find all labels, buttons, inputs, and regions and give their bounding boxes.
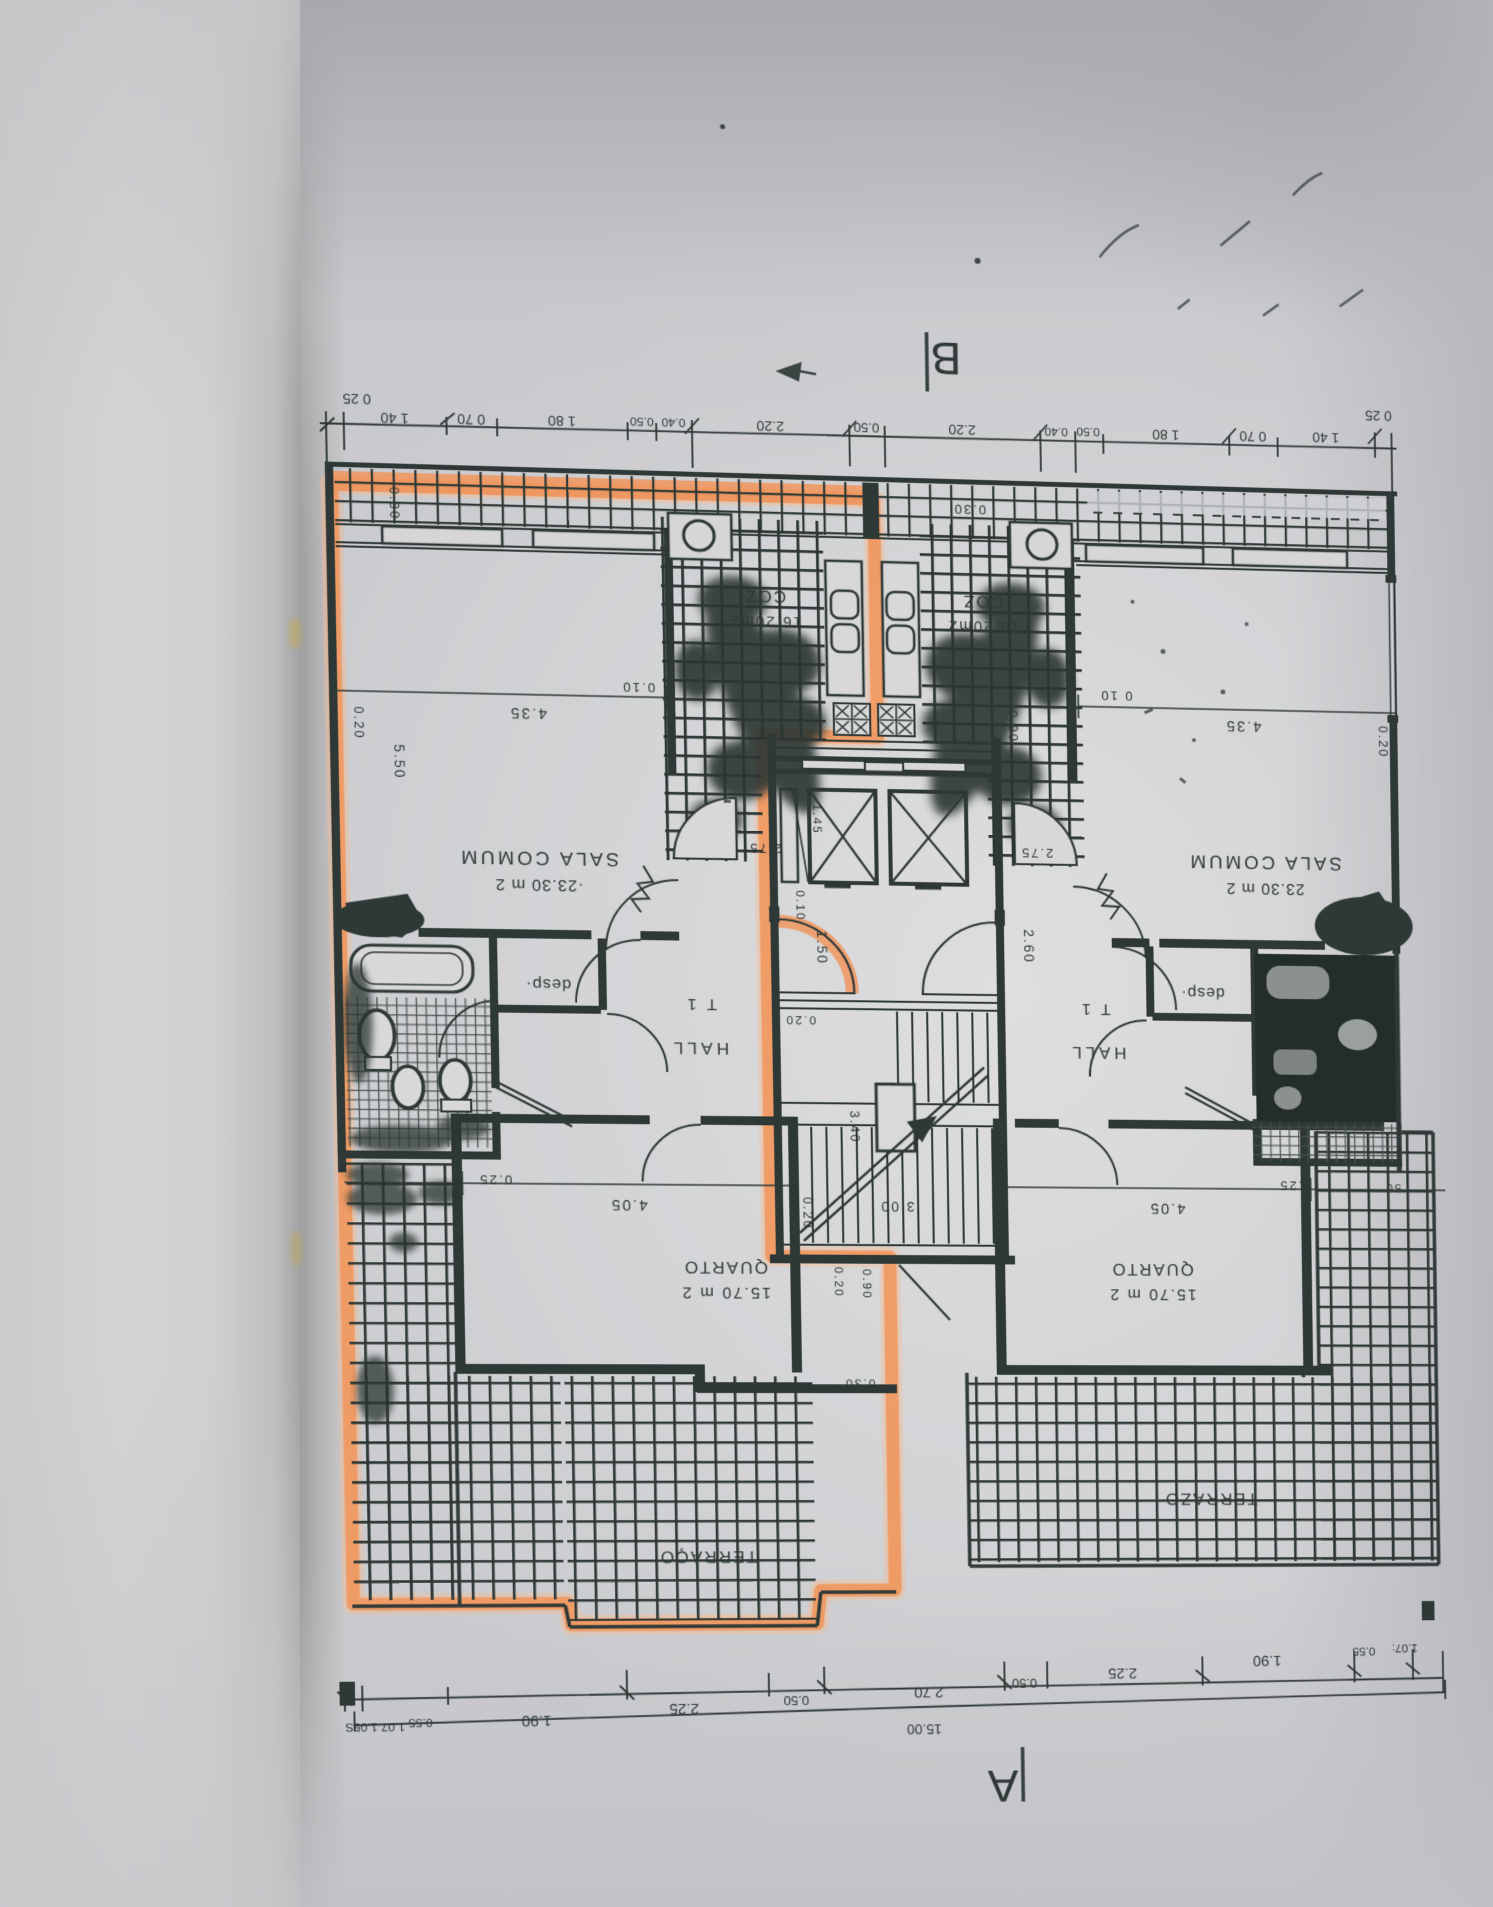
svg-text:0.50: 0.50 — [1012, 1676, 1037, 1690]
svg-text:15.70 m 2: 15.70 m 2 — [1108, 1286, 1196, 1304]
svg-text:0.40: 0.40 — [661, 415, 685, 429]
svg-text:0 25: 0 25 — [1365, 407, 1392, 423]
svg-text:A: A — [987, 1760, 1019, 1810]
svg-text:16.20m2: 16.20m2 — [728, 612, 802, 630]
svg-text:desp·: desp· — [1180, 984, 1225, 1003]
svg-text:0.90: 0.90 — [1006, 710, 1021, 743]
svg-text:1.50: 1.50 — [813, 930, 829, 965]
svg-text:0.10: 0.10 — [621, 680, 655, 695]
svg-text:3.00: 3.00 — [879, 1198, 915, 1213]
svg-text:0.50: 0.50 — [854, 420, 880, 435]
svg-text:0.90: 0.90 — [860, 1269, 874, 1300]
svg-text:0.10: 0.10 — [793, 890, 807, 921]
svg-text:1.45: 1.45 — [810, 804, 824, 835]
svg-text:0.20: 0.20 — [351, 706, 367, 740]
svg-text:0.20: 0.20 — [832, 1267, 846, 1298]
svg-text:HALL: HALL — [669, 1039, 729, 1059]
svg-text:2.20: 2.20 — [948, 421, 976, 437]
svg-text:0.25: 0.25 — [478, 1172, 512, 1187]
svg-text:0.50: 0.50 — [1076, 425, 1100, 439]
svg-text:18.20m2: 18.20m2 — [947, 617, 1020, 635]
svg-text:0.40: 0.40 — [1044, 425, 1068, 439]
svg-text:HALL: HALL — [1068, 1043, 1126, 1063]
svg-text:0.55: 0.55 — [1352, 1645, 1375, 1658]
svg-text:SALA COMUM: SALA COMUM — [1187, 850, 1342, 873]
svg-text:2.75: 2.75 — [748, 841, 782, 856]
svg-text:2.60: 2.60 — [1020, 929, 1036, 964]
svg-text:2.25: 2.25 — [669, 1700, 699, 1716]
svg-text:0.30: 0.30 — [953, 502, 987, 517]
svg-text:B: B — [930, 332, 962, 384]
svg-text:1.90: 1.90 — [522, 1712, 552, 1728]
svg-text:QUARTO: QUARTO — [683, 1258, 769, 1278]
svg-text:15.00: 15.00 — [907, 1721, 942, 1736]
svg-text:1 40: 1 40 — [1312, 429, 1339, 445]
svg-text:0 25: 0 25 — [343, 390, 372, 406]
svg-text:SALA COMUM: SALA COMUM — [458, 846, 619, 870]
svg-text:0.80: 0.80 — [387, 487, 403, 521]
svg-text:1.07:: 1.07: — [1392, 1642, 1418, 1655]
svg-text:4.35: 4.35 — [1225, 717, 1262, 734]
svg-text:QUARTO: QUARTO — [1110, 1260, 1193, 1279]
svg-text:50: 50 — [1384, 1181, 1401, 1194]
svg-text:15.70 m 2: 15.70 m 2 — [680, 1284, 771, 1303]
svg-text:0.50: 0.50 — [784, 1693, 810, 1707]
svg-text:0 70: 0 70 — [1239, 428, 1266, 444]
svg-text:3.40: 3.40 — [847, 1111, 862, 1144]
svg-text:COZ: COZ — [744, 586, 787, 606]
svg-text:2 70: 2 70 — [914, 1684, 943, 1700]
svg-text:2.25: 2.25 — [1108, 1665, 1137, 1681]
svg-text:0.20: 0.20 — [1376, 726, 1391, 759]
svg-text:0.55: 0.55 — [408, 1716, 432, 1730]
svg-text:·23.30 m 2: ·23.30 m 2 — [495, 875, 584, 895]
svg-text:1 80: 1 80 — [548, 412, 576, 428]
svg-text:1.07 1.05S: 1.07 1.05S — [345, 1720, 405, 1734]
svg-text:0.20: 0.20 — [800, 1197, 815, 1230]
svg-text:TERRAZO: TERRAZO — [1164, 1490, 1258, 1509]
svg-text:T 1: T 1 — [684, 995, 717, 1014]
svg-text:1 40: 1 40 — [380, 409, 409, 425]
svg-text:5.50: 5.50 — [390, 744, 407, 780]
svg-text:4.35: 4.35 — [509, 704, 548, 721]
svg-text:0 10: 0 10 — [1099, 688, 1132, 703]
svg-text:0.20: 0.20 — [784, 1013, 816, 1027]
svg-text:TERRAÇO: TERRAÇO — [659, 1547, 758, 1566]
svg-text:1 80: 1 80 — [1152, 426, 1179, 442]
svg-text:1.90: 1.90 — [1253, 1652, 1282, 1668]
svg-text:4.05: 4.05 — [610, 1196, 648, 1213]
svg-text:COZ: COZ — [962, 592, 1004, 612]
svg-text:2.20: 2.20 — [756, 417, 784, 433]
svg-text:0.25: 0.25 — [1278, 1179, 1311, 1193]
svg-text:0.50: 0.50 — [630, 414, 654, 428]
svg-text:23.30 m 2: 23.30 m 2 — [1226, 879, 1305, 898]
svg-text:0.30: 0.30 — [844, 1377, 876, 1390]
svg-text:desp·: desp· — [525, 975, 572, 994]
svg-text:4.05: 4.05 — [1149, 1200, 1186, 1216]
svg-text:T 1: T 1 — [1079, 1000, 1111, 1018]
svg-text:0 70: 0 70 — [457, 410, 485, 426]
svg-text:2.75: 2.75 — [1020, 846, 1053, 861]
